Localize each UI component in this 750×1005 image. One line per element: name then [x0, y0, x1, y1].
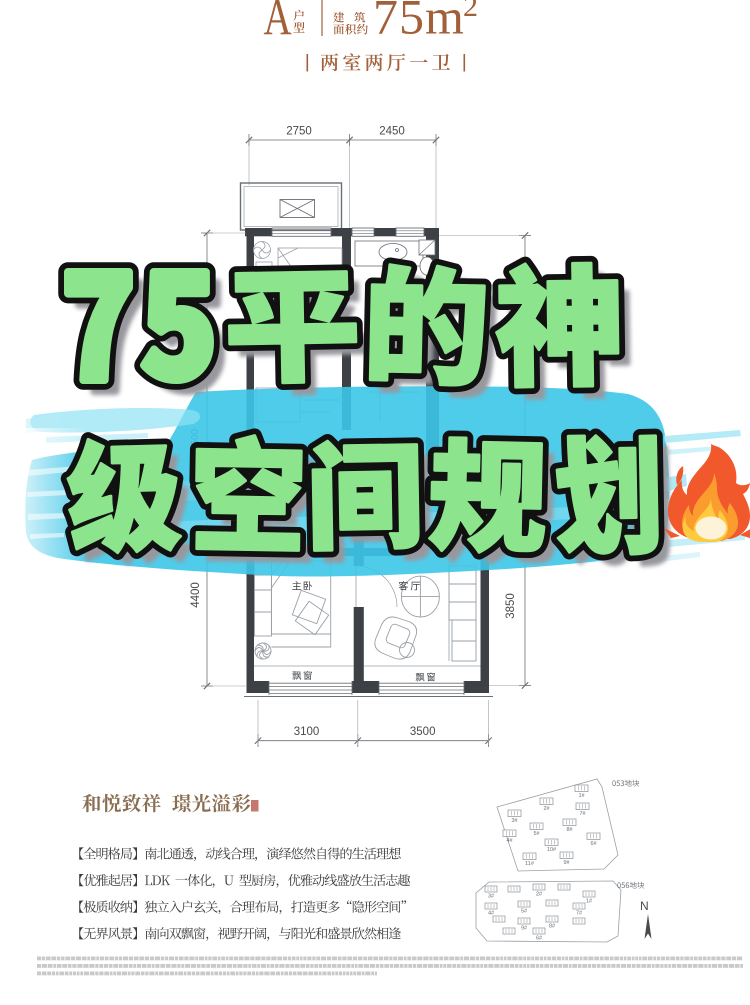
- svg-text:75m: 75m: [373, 0, 465, 45]
- svg-text:3#: 3#: [511, 818, 518, 824]
- svg-text:9#: 9#: [563, 860, 570, 866]
- svg-text:8#: 8#: [566, 827, 573, 833]
- svg-text:5#: 5#: [521, 909, 528, 915]
- svg-text:6#: 6#: [536, 936, 543, 942]
- svg-text:A: A: [264, 0, 292, 46]
- svg-text:4#: 4#: [506, 838, 513, 844]
- svg-text:2#: 2#: [536, 892, 543, 898]
- svg-text:11#: 11#: [525, 861, 535, 867]
- svg-text:9#: 9#: [521, 926, 528, 932]
- svg-text:3850: 3850: [505, 593, 517, 619]
- svg-text:7#: 7#: [576, 911, 583, 917]
- svg-text:6#: 6#: [590, 841, 597, 847]
- svg-text:3100: 3100: [294, 726, 320, 738]
- svg-text:5#: 5#: [533, 831, 540, 837]
- svg-text:10#: 10#: [547, 847, 557, 853]
- svg-text:N: N: [640, 899, 649, 913]
- svg-text:8#: 8#: [549, 924, 556, 930]
- svg-text:7#: 7#: [579, 811, 586, 817]
- svg-text:1#: 1#: [586, 899, 593, 905]
- svg-text:3500: 3500: [410, 726, 436, 738]
- svg-text:2: 2: [463, 0, 478, 23]
- svg-text:2750: 2750: [286, 126, 312, 138]
- svg-text:2#: 2#: [543, 806, 550, 812]
- svg-text:3#: 3#: [488, 894, 495, 900]
- svg-text:4#: 4#: [488, 911, 495, 917]
- svg-text:2450: 2450: [379, 126, 405, 138]
- svg-text:4400: 4400: [190, 582, 202, 608]
- svg-text:1#: 1#: [578, 793, 585, 799]
